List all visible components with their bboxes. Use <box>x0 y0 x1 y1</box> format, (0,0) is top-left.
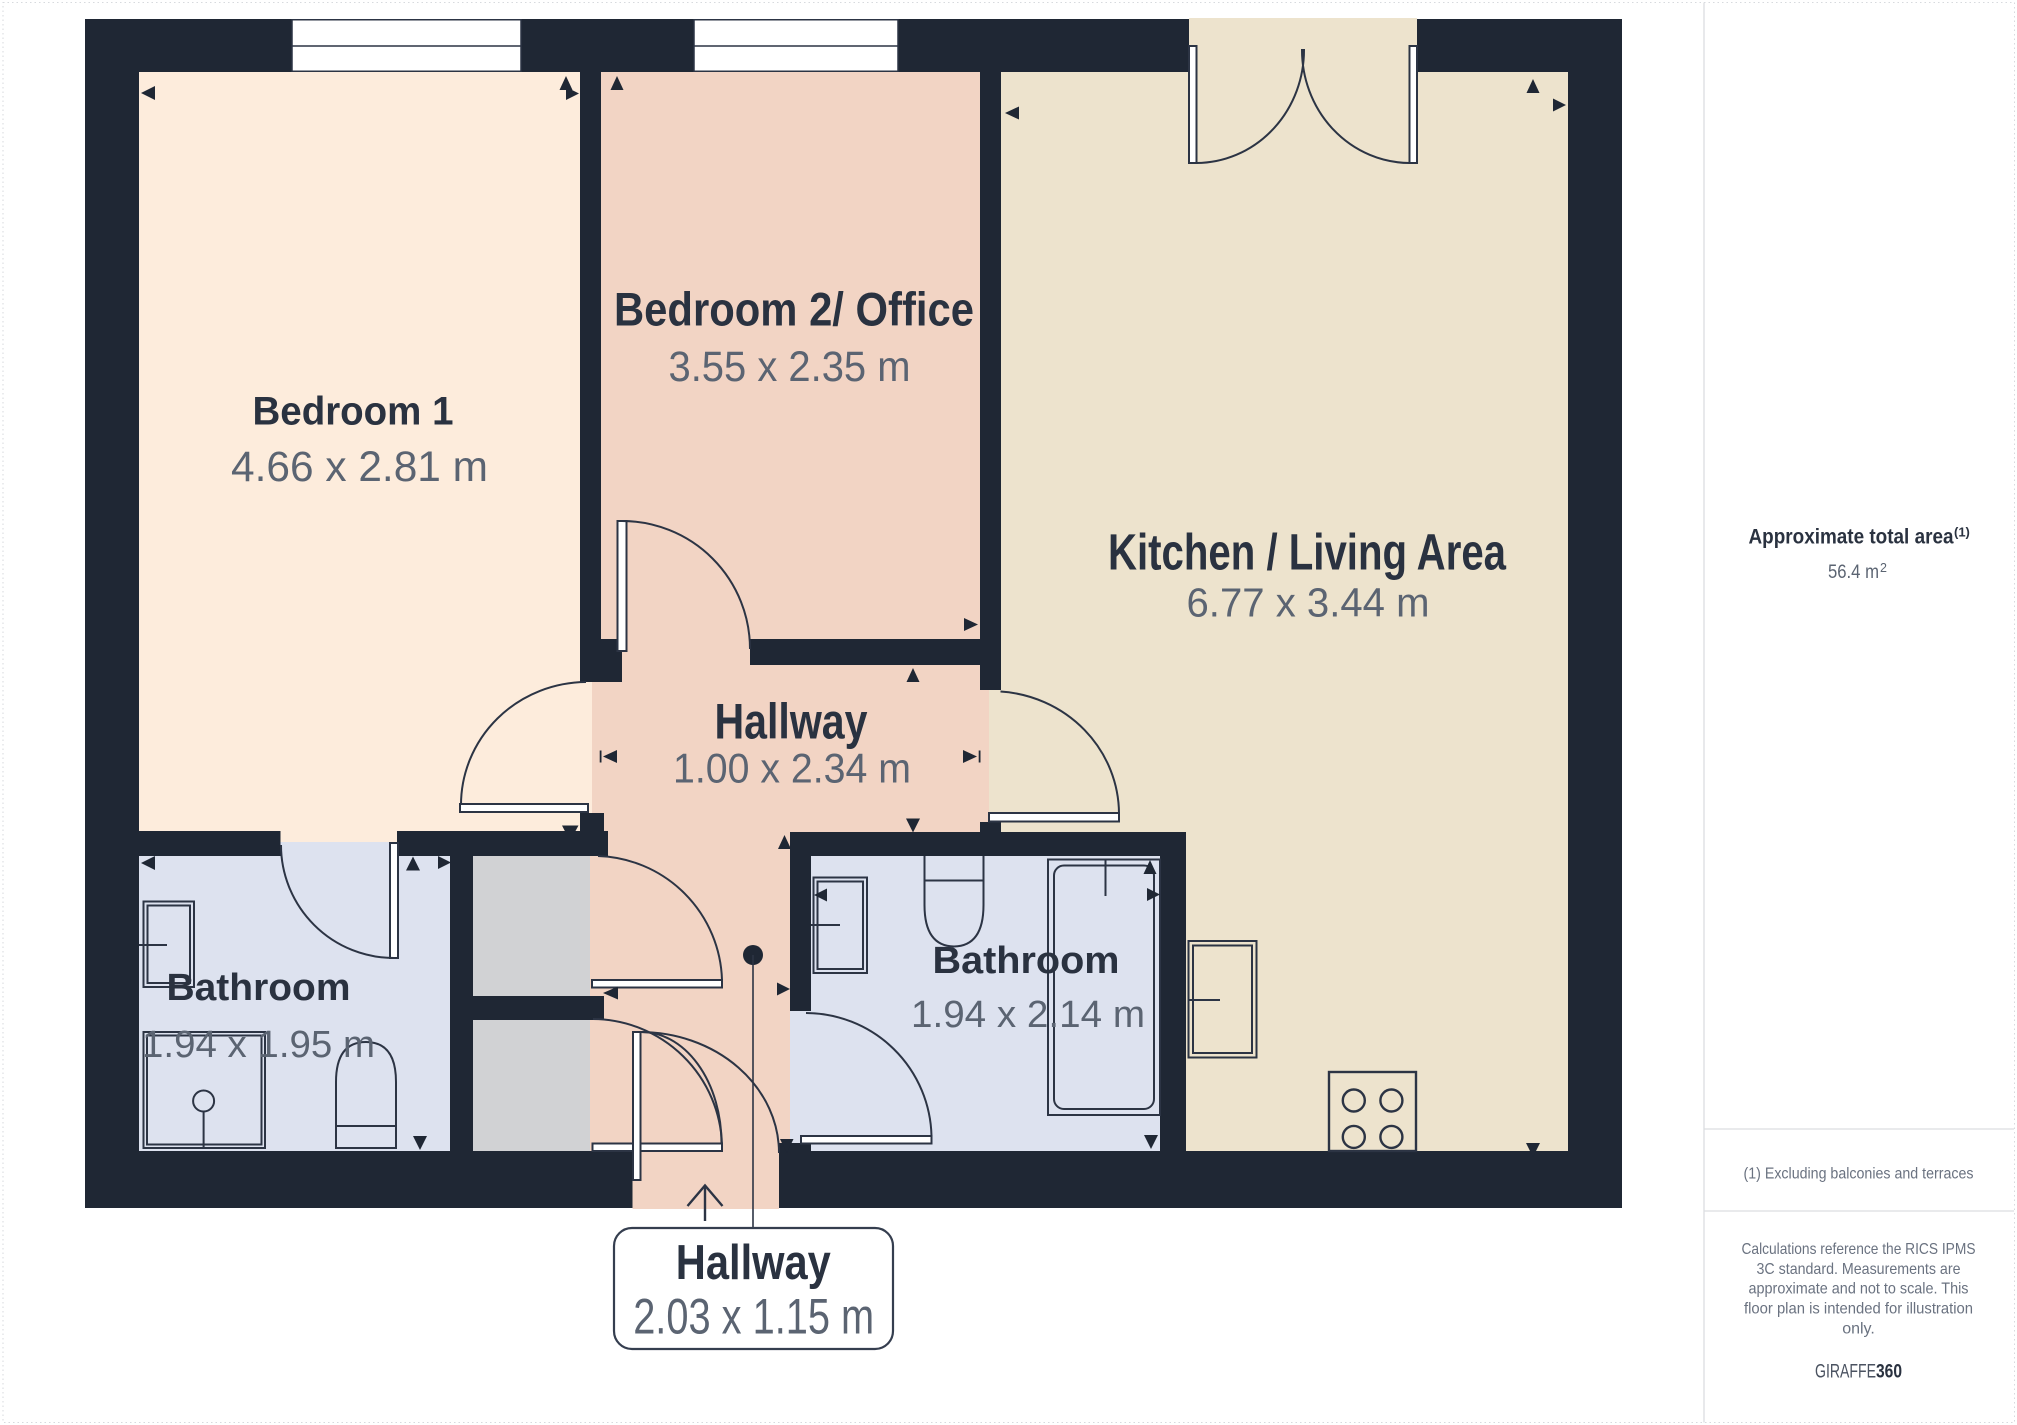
svg-text:Kitchen / Living Area: Kitchen / Living Area <box>1108 524 1506 581</box>
svg-text:2: 2 <box>1880 561 1887 575</box>
svg-text:Bathroom: Bathroom <box>167 967 351 1009</box>
svg-text:(1) Excluding balconies and te: (1) Excluding balconies and terraces <box>1744 1166 1974 1183</box>
svg-text:4.66 x 2.81 m: 4.66 x 2.81 m <box>231 443 488 491</box>
svg-text:360: 360 <box>1876 1362 1902 1383</box>
svg-text:3.55 x 2.35 m: 3.55 x 2.35 m <box>669 343 911 391</box>
svg-text:Bedroom 2/ Office: Bedroom 2/ Office <box>614 283 974 336</box>
svg-text:1.94 x 2.14 m: 1.94 x 2.14 m <box>911 994 1145 1036</box>
svg-text:Bedroom 1: Bedroom 1 <box>253 390 454 434</box>
svg-text:Approximate total area: Approximate total area <box>1749 525 1955 549</box>
svg-text:Bathroom: Bathroom <box>933 940 1120 982</box>
svg-text:Hallway: Hallway <box>676 1236 831 1290</box>
svg-text:only.: only. <box>1842 1321 1875 1338</box>
svg-text:56.4 m: 56.4 m <box>1828 562 1879 583</box>
svg-text:floor plan is intended for ill: floor plan is intended for illustration <box>1744 1301 1973 1318</box>
svg-text:GIRAFFE: GIRAFFE <box>1815 1362 1876 1383</box>
svg-text:Hallway: Hallway <box>715 694 868 750</box>
svg-text:approximate and not to scale.: approximate and not to scale. This <box>1749 1281 1969 1298</box>
svg-text:6.77 x 3.44 m: 6.77 x 3.44 m <box>1187 580 1430 626</box>
svg-text:3C standard. Measurements are: 3C standard. Measurements are <box>1757 1261 1961 1278</box>
svg-text:1.00 x 2.34 m: 1.00 x 2.34 m <box>673 745 911 792</box>
svg-text:2.03 x 1.15 m: 2.03 x 1.15 m <box>633 1289 874 1345</box>
svg-text:Calculations reference the RIC: Calculations reference the RICS IPMS <box>1742 1241 1976 1258</box>
svg-text:(1): (1) <box>1954 525 1970 540</box>
svg-text:1.94 x 1.95 m: 1.94 x 1.95 m <box>142 1024 375 1066</box>
